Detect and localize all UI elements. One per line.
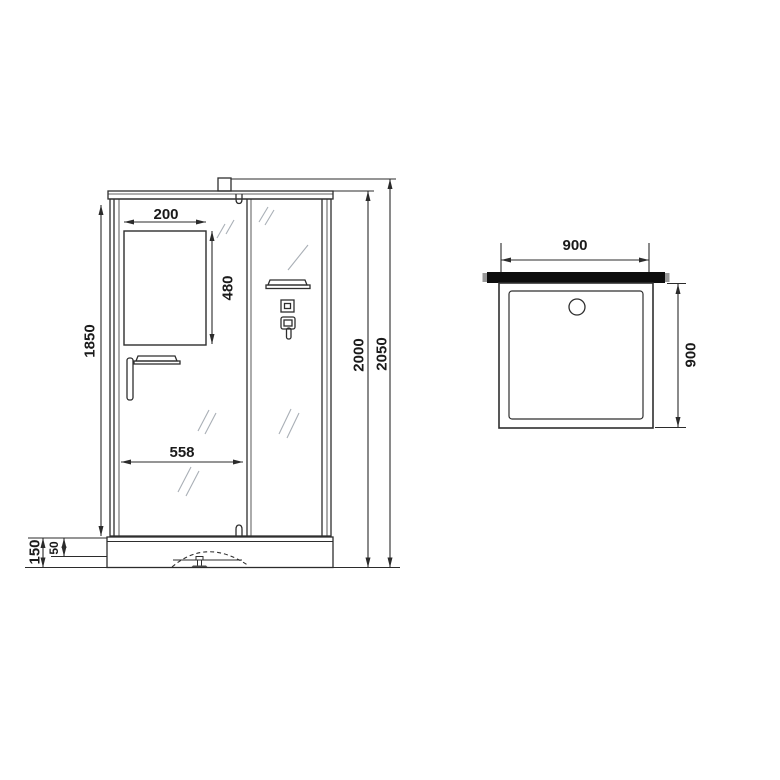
dim-label-base-step: 50 bbox=[47, 541, 61, 555]
dim-label-body-height: 1850 bbox=[81, 324, 98, 357]
grab-handle bbox=[127, 358, 133, 400]
control-knob bbox=[281, 300, 294, 312]
front-dimensions bbox=[25, 179, 400, 568]
dim-label-mirror-width: 200 bbox=[153, 206, 178, 223]
adjustable-foot bbox=[191, 557, 208, 568]
drawing-canvas: 200 480 1850 558 150 50 2000 2050 900 90… bbox=[0, 0, 780, 780]
mixer-handle bbox=[281, 317, 295, 339]
dim-label-tray-width: 900 bbox=[562, 237, 587, 254]
dim-label-base-height: 150 bbox=[26, 539, 43, 564]
door-knob bbox=[236, 525, 242, 536]
tray-inner bbox=[509, 291, 643, 419]
wall-profile-tab-right bbox=[665, 273, 670, 282]
dim-label-door-width: 558 bbox=[169, 444, 194, 461]
top-view bbox=[483, 272, 670, 428]
dim-label-total-height: 2050 bbox=[373, 337, 390, 370]
technical-drawing: 200 480 1850 558 150 50 2000 2050 900 90… bbox=[0, 0, 780, 780]
dim-label-tray-depth: 900 bbox=[682, 342, 699, 367]
base-skirt bbox=[107, 537, 333, 568]
roof-panel bbox=[108, 191, 333, 199]
wall-profile-tab-left bbox=[483, 273, 488, 282]
shelf-right bbox=[266, 280, 310, 289]
drain-icon bbox=[569, 299, 585, 315]
wall-profile-bar bbox=[487, 272, 665, 283]
glass-hatching bbox=[178, 207, 308, 496]
roof-vent-cap bbox=[218, 178, 231, 191]
shelf-left bbox=[134, 356, 180, 364]
mirror bbox=[124, 231, 206, 345]
cabin-frame bbox=[110, 199, 331, 536]
top-dimensions bbox=[501, 243, 686, 428]
tray-outer bbox=[499, 283, 653, 428]
front-view bbox=[107, 178, 333, 568]
dim-label-cabin-height: 2000 bbox=[350, 338, 367, 371]
dim-label-mirror-height: 480 bbox=[219, 275, 236, 300]
